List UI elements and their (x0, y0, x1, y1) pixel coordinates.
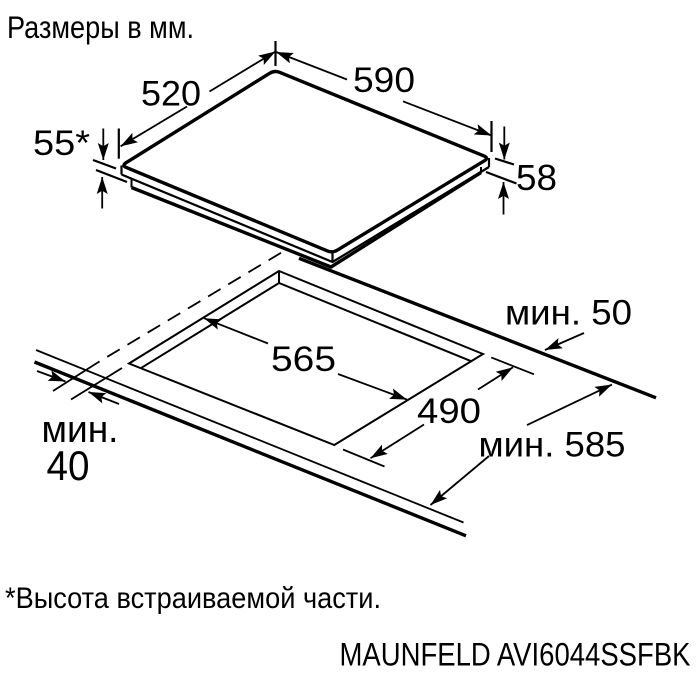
svg-text:58: 58 (516, 157, 557, 198)
svg-text:MAUNFELD AVI6044SSFBK: MAUNFELD AVI6044SSFBK (340, 637, 691, 673)
svg-text:490: 490 (417, 392, 481, 431)
svg-text:мин. 50: мин. 50 (505, 294, 632, 333)
svg-text:мин. 585: мин. 585 (479, 426, 626, 465)
svg-text:590: 590 (353, 61, 415, 100)
svg-text:565: 565 (271, 340, 336, 379)
svg-text:40: 40 (47, 442, 90, 489)
svg-text:55*: 55* (33, 124, 90, 163)
svg-text:520: 520 (141, 75, 201, 114)
svg-text:Размеры в мм.: Размеры в мм. (7, 9, 194, 45)
svg-text:*Высота встраиваемой части.: *Высота встраиваемой части. (5, 582, 381, 615)
